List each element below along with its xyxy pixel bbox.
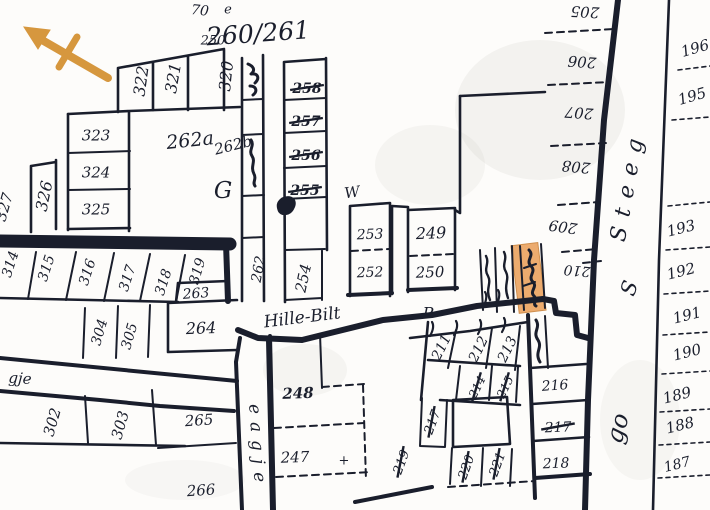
plot-number-label: 206: [567, 52, 598, 72]
plot-number-label: 323: [82, 126, 111, 144]
plot-number-label: 217: [420, 405, 445, 440]
plot-number-label-text: 303: [108, 409, 133, 441]
plot-number-label: 216: [540, 377, 569, 395]
plot-number-label: 196: [679, 36, 710, 61]
plot-number-label-text: 216: [540, 377, 569, 395]
plot-number-label-text: 254: [291, 262, 315, 295]
plot-number-label: 265: [183, 410, 214, 430]
plot-number-label: 248: [281, 384, 314, 403]
plot-number-label-text: 314: [0, 249, 23, 279]
plot-number-label: 305: [118, 321, 141, 351]
street-name-label-text: Hille-Bilt: [262, 303, 342, 332]
scanned-cadastral-map: 322321320323324325326327262a262bG250260/…: [0, 0, 710, 510]
plot-number-label-text: 263: [181, 285, 210, 303]
plot-number-label: 205: [570, 2, 601, 22]
plot-number-label-text: 316: [76, 257, 100, 287]
letter-mark: P: [422, 304, 434, 323]
plot-number-label: 247: [279, 448, 310, 467]
plot-number-label: 209: [547, 216, 579, 238]
street-name-label: Hille-Bilt: [262, 303, 342, 332]
letter-mark-text: P: [422, 304, 434, 323]
plot-number-label: 320: [215, 60, 237, 92]
map-inscription: 70: [190, 2, 209, 20]
plot-number-label: 256: [289, 148, 323, 164]
plot-number-label-text: 322: [130, 65, 153, 98]
plot-number-label: 304: [88, 317, 111, 347]
plot-number-label: 262a: [164, 127, 215, 154]
plot-number-label-text: 265: [183, 410, 214, 430]
plot-number-label: 218: [541, 455, 569, 472]
plot-number-label: 221: [485, 447, 510, 482]
plot-number-label-text: 190: [671, 340, 704, 365]
street-name-label: S: [616, 278, 643, 299]
letter-mark-text: +: [339, 454, 350, 469]
plot-number-label-text: 205: [570, 2, 601, 22]
plot-number-label: 208: [561, 156, 592, 177]
plot-number-label-text: 327: [0, 190, 17, 223]
plot-number-label: 322: [130, 65, 153, 98]
plot-number-label-text: 249: [414, 223, 446, 243]
plot-number-label-text: 302: [40, 406, 65, 438]
plot-number-label: 303: [108, 409, 133, 441]
plot-number-label: 254: [291, 262, 315, 295]
plot-number-label: 219: [389, 445, 414, 480]
plot-number-label: 190: [671, 340, 704, 365]
plot-number-label: 193: [665, 216, 697, 240]
plot-number-label-text: 305: [118, 321, 141, 351]
plot-number-label-text: 323: [82, 126, 111, 144]
letter-mark: W: [343, 182, 362, 202]
plot-number-label-text: 252: [355, 264, 383, 281]
plot-number-label: 255: [288, 183, 322, 199]
street-name-label: gje: [8, 369, 32, 389]
plot-number-label-text: 195: [676, 84, 708, 109]
plot-number-label-text: 318: [152, 267, 176, 297]
plot-number-label-text: 192: [665, 259, 697, 283]
letter-mark: +: [339, 454, 350, 469]
street-name-label-text: eagje: [244, 403, 270, 491]
plot-number-label: 324: [82, 163, 111, 181]
plot-number-label: 318: [152, 267, 176, 297]
plot-number-label: 262: [249, 255, 270, 285]
street-name-label: eagje: [244, 403, 270, 491]
plot-number-label-text: 210: [563, 261, 592, 279]
plot-number-label-text: 325: [82, 200, 111, 218]
plot-number-label: 263: [181, 285, 210, 303]
plot-number-label-text: 321: [161, 61, 185, 94]
plot-number-label-text: 208: [561, 156, 592, 177]
plot-number-label-text: 247: [279, 448, 310, 467]
plot-number-label: 315: [35, 253, 59, 283]
letter-mark: G: [214, 178, 232, 204]
plot-number-label-text: 206: [567, 52, 598, 72]
plot-number-label-text: 266: [185, 480, 216, 500]
plot-number-label-text: 262b: [211, 132, 253, 159]
plot-number-label: 252: [355, 264, 383, 281]
letter-mark: e: [224, 3, 232, 18]
letter-mark-text: G: [214, 178, 232, 204]
plot-number-label: 192: [665, 259, 697, 283]
street-name-label-text: S: [616, 278, 643, 299]
plot-number-label-text: 248: [281, 384, 314, 403]
plot-number-label: 321: [161, 61, 185, 94]
plot-number-label-text: 262a: [164, 127, 215, 154]
plot-number-label-text: 191: [671, 303, 703, 327]
plot-number-label-text: 193: [665, 216, 697, 240]
plot-number-label: 317: [116, 263, 140, 293]
letter-mark-text: e: [224, 3, 232, 18]
plot-number-label-text: 253: [355, 226, 383, 243]
plot-number-label: 257: [289, 114, 323, 130]
plot-number-label-text: 326: [32, 179, 57, 213]
plot-number-label-text: 324: [82, 163, 111, 181]
street-name-label-text: gje: [8, 369, 32, 389]
plot-number-label-text: 264: [184, 318, 216, 338]
plot-number-label: 220: [454, 450, 479, 485]
plot-number-label: 266: [185, 480, 216, 500]
plot-number-label-text: 262: [249, 255, 270, 285]
north-arrow-icon: [24, 27, 108, 78]
plot-number-label: 195: [676, 84, 708, 109]
plot-number-label: 325: [82, 200, 111, 218]
plot-number-label-text: 250: [414, 263, 445, 282]
map-canvas: 322321320323324325326327262a262bG250260/…: [0, 0, 710, 510]
plot-number-label: 327: [0, 190, 17, 223]
map-inscription: 260/261: [204, 15, 311, 51]
plot-number-label: 191: [671, 303, 703, 327]
plot-number-label: 258: [290, 81, 324, 97]
plot-number-label: 302: [40, 406, 65, 438]
plot-number-label: 264: [184, 318, 216, 338]
plot-number-label: 262b: [211, 132, 253, 159]
plot-number-label: 326: [32, 179, 57, 213]
road-band-west: [0, 241, 230, 244]
plot-number-label: 314: [0, 249, 23, 279]
plot-number-label: 253: [355, 226, 383, 243]
plot-number-label: 207: [564, 103, 595, 123]
plot-number-label-text: 304: [88, 317, 111, 347]
plot-number-label-text: 320: [215, 60, 237, 92]
plot-number-label: 250: [414, 263, 445, 282]
plot-number-label: 316: [76, 257, 100, 287]
map-inscription-text: 70: [190, 2, 209, 20]
plot-number-label-text: 207: [564, 103, 595, 123]
plot-number-label-text: 209: [547, 216, 579, 238]
plot-number-label-text: 317: [116, 263, 140, 293]
plot-number-label-text: 196: [679, 36, 710, 61]
plot-number-label: 210: [563, 261, 592, 279]
map-inscription-text: 260/261: [204, 15, 311, 51]
plot-number-label-text: 315: [35, 253, 59, 283]
plot-number-label: 217: [541, 419, 575, 436]
plot-number-label: 249: [414, 223, 446, 243]
plot-number-label-text: 218: [541, 455, 569, 472]
letter-mark-text: W: [343, 182, 362, 202]
